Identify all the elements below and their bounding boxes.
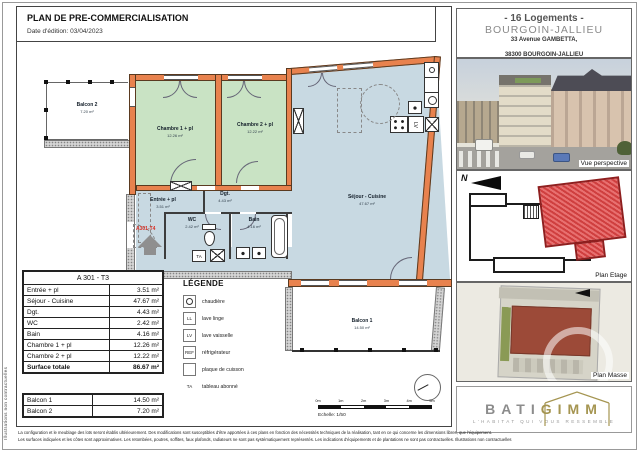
lv-label: LV	[412, 122, 418, 128]
partition-wc-bain	[229, 214, 231, 259]
table-row: Balcon 114.50 m²	[24, 395, 163, 406]
label-bain: Bain 4.16 m²	[234, 217, 274, 229]
north-letter: N	[461, 173, 468, 183]
disclaimer-line2: Les surfaces indiquées et les côtes sont…	[18, 437, 512, 442]
photo-building-mid	[499, 83, 551, 147]
row-label: Entrée + pl	[24, 285, 110, 296]
perspective-photo: Vue perspective	[456, 58, 632, 170]
compass-needle	[417, 384, 428, 391]
balcony-post	[66, 80, 70, 84]
photo-car-blue	[553, 153, 570, 162]
scale-tick: 2m	[361, 399, 366, 403]
legend-label: tableau abonné	[202, 384, 238, 390]
ta-box-icon: TA	[192, 250, 206, 262]
washer-icon	[210, 249, 225, 262]
legend-item: plaque de cuisson	[183, 363, 293, 377]
ta-icon: TA	[183, 380, 196, 393]
boiler-circle-icon	[183, 295, 196, 308]
side-note: Illustrations non contractuelles	[3, 295, 8, 440]
radiator-icon	[293, 108, 304, 134]
balcony-post	[334, 348, 338, 352]
room-area: 47.67 m²	[327, 201, 407, 206]
table-row: WC2.42 m²	[24, 318, 163, 329]
logo-house-icon	[543, 389, 613, 429]
balcony-post	[88, 80, 92, 84]
door-chambre2	[241, 186, 259, 190]
bathtub-inner	[274, 218, 285, 255]
legend-item: TA tableau abonné	[183, 380, 293, 394]
label-dgt: Dgt. 4.43 m²	[205, 191, 245, 203]
room-area: 14.50 m²	[327, 325, 397, 330]
cooktop-icon	[183, 363, 196, 376]
highlighted-unit	[538, 176, 627, 248]
north-arrow-icon	[471, 176, 501, 190]
partition-entree-wc	[164, 212, 166, 259]
room-area: 12.26 m²	[140, 133, 210, 138]
radiator-icon	[170, 181, 192, 191]
table-dashed-icon	[360, 84, 400, 124]
fridge-divider	[425, 77, 438, 78]
label-wc: WC 2.42 m²	[172, 217, 212, 229]
table-row: Bain4.16 m²	[24, 329, 163, 340]
north-arrow-icon	[575, 289, 590, 297]
label-chambre2: Chambre 2 + pl 12.22 m²	[220, 122, 290, 134]
legend: LÉGENDE chaudière LL lave linge LV lave …	[183, 279, 293, 397]
row-label: Chambre 1 + pl	[24, 340, 110, 351]
project-city: BOURGOIN-JALLIEU	[457, 24, 631, 36]
logo-box: BATIGIMM L'HABITAT QUI VOUS RESSEMBLE	[456, 386, 632, 433]
row-value: 12.22 m²	[109, 351, 162, 362]
row-label: Surface totale	[24, 362, 110, 373]
row-value: 2.42 m²	[109, 318, 162, 329]
boiler-circle-icon	[429, 67, 435, 73]
room-area: 4.43 m²	[205, 198, 245, 203]
row-value: 7.20 m²	[93, 406, 163, 417]
label-chambre1: Chambre 1 + pl 12.26 m²	[140, 126, 210, 138]
photo-van	[475, 139, 493, 151]
legend-item: chaudière	[183, 295, 293, 309]
row-label: WC	[24, 318, 110, 329]
mass-plan-label: Plan Masse	[591, 372, 629, 379]
balcony-post	[402, 348, 406, 352]
row-value: 47.67 m²	[109, 296, 162, 307]
row-value: 4.43 m²	[109, 307, 162, 318]
door-chambre1	[197, 186, 215, 190]
title-block: PLAN DE PRE-COMMERCIALISATION Date d'édi…	[16, 6, 436, 42]
radiator-icon	[425, 117, 439, 132]
perspective-label: Vue perspective	[579, 160, 629, 167]
washing-machine-icon: LL	[183, 312, 196, 325]
floor-key-plan: N Plan Etage	[456, 170, 632, 282]
row-value: 3.51 m²	[109, 285, 162, 296]
unit-title: A 301 - T3	[24, 272, 163, 285]
photo-green-terrace	[515, 78, 541, 83]
disclaimer-line1: La configuration et le meublage des lots…	[18, 430, 492, 435]
fridge-stack-icon	[424, 62, 439, 108]
project-address1: 33 Avenue GAMBETTA,	[457, 37, 631, 43]
photo-car-white	[519, 151, 535, 159]
label-balcon1: Balcon 1 14.50 m²	[327, 318, 397, 330]
plan-sheet: Illustrations non contractuelles PLAN DE…	[0, 0, 640, 453]
balcony-post	[434, 348, 438, 352]
balcony-door3	[399, 280, 427, 286]
dishwasher-icon: LV	[408, 116, 424, 133]
table-row: Chambre 1 + pl12.26 m²	[24, 340, 163, 351]
edition-date: Date d'édition: 03/04/2023	[27, 28, 103, 35]
balcony-post	[44, 136, 48, 140]
balcony-door2	[339, 280, 367, 286]
room-area: 3.51 m²	[138, 204, 188, 209]
dishwasher-icon: LV	[183, 329, 196, 342]
legend-item: LL lave linge	[183, 312, 293, 326]
row-label: Dgt.	[24, 307, 110, 318]
legend-item: REF réfrigérateur	[183, 346, 293, 360]
compass-icon	[414, 374, 441, 401]
balcony-post	[368, 348, 372, 352]
label-sejour: Séjour - Cuisine 47.67 m²	[327, 194, 407, 206]
legend-label: lave linge	[202, 316, 224, 322]
row-label: Balcon 2	[24, 406, 93, 417]
window-chambre2	[228, 75, 262, 80]
scale-tick: 5m	[429, 399, 434, 403]
table-header-row: A 301 - T3	[24, 272, 163, 285]
scale-tick: 3m	[384, 399, 389, 403]
sink-icon	[236, 247, 250, 259]
project-units: - 16 Logements -	[457, 13, 631, 24]
table-row: Balcon 27.20 m²	[24, 406, 163, 417]
balcony-post	[44, 108, 48, 112]
window-balcon2-door	[130, 87, 135, 107]
scale-label: Echelle: 1/50	[318, 413, 346, 418]
table-row: Entrée + pl3.51 m²	[24, 285, 163, 296]
stair-core	[523, 205, 539, 219]
legend-label: plaque de cuisson	[202, 367, 244, 373]
balcony-door1	[301, 280, 329, 286]
balcony-post	[300, 348, 304, 352]
label-entree: Entrée + pl 3.51 m²	[138, 197, 188, 209]
sheet-title: PLAN DE PRE-COMMERCIALISATION	[27, 13, 188, 23]
window-sejour-top2	[343, 62, 373, 69]
legend-label: réfrigérateur	[202, 350, 230, 356]
table-row: Séjour - Cuisine47.67 m²	[24, 296, 163, 307]
row-value: 4.16 m²	[109, 329, 162, 340]
scale-tick: 0m	[315, 399, 320, 403]
photo-crosswalk	[459, 151, 499, 167]
legend-title: LÉGENDE	[183, 279, 224, 288]
room-area: 7.20 m²	[52, 109, 122, 114]
entry-arrow-icon	[138, 235, 162, 247]
sink-icon	[252, 247, 266, 259]
photo-roof-right	[551, 69, 632, 91]
wall-top-left	[130, 74, 292, 81]
room-area: 4.16 m²	[234, 224, 274, 229]
legend-label: chaudière	[202, 299, 225, 305]
fridge-divider	[425, 92, 438, 93]
mass-plan: Plan Masse	[456, 282, 632, 382]
legend-label: lave vaisselle	[202, 333, 233, 339]
entry-arrow-stem	[144, 247, 156, 255]
wall-bottom-sejour	[288, 279, 452, 287]
photo-bush	[617, 141, 632, 155]
project-info-box: - 16 Logements - BOURGOIN-JALLIEU 33 Ave…	[456, 8, 632, 58]
kitchen-sink-icon	[408, 101, 422, 114]
hatch-wall-balcon2	[44, 140, 136, 148]
photo-building-right	[551, 89, 632, 147]
row-label: Bain	[24, 329, 110, 340]
highlighted-unit-tail	[574, 239, 606, 261]
legend-item: LV lave vaisselle	[183, 329, 293, 343]
scale-tick: 1m	[338, 399, 343, 403]
table-total-row: Surface totale86.67 m²	[24, 362, 163, 373]
counter-dashed-icon	[337, 88, 362, 133]
window-sejour-top	[309, 65, 337, 72]
room-area: 12.22 m²	[220, 129, 290, 134]
balcony-table: Balcon 114.50 m² Balcon 27.20 m²	[22, 393, 164, 418]
fridge-icon: REF	[183, 346, 196, 359]
building-wing	[493, 257, 565, 273]
partition-wc-top-a	[164, 212, 205, 214]
row-value: 14.50 m²	[93, 395, 163, 406]
building-wing2	[469, 193, 507, 207]
row-label: Séjour - Cuisine	[24, 296, 110, 307]
row-value: 12.26 m²	[109, 340, 162, 351]
scale-segments	[318, 405, 432, 409]
label-balcon2: Balcon 2 7.20 m²	[52, 102, 122, 114]
ta-label: TA	[196, 254, 201, 259]
wall-left	[129, 74, 136, 195]
scale-tick: 4m	[407, 399, 412, 403]
row-label: Chambre 2 + pl	[24, 351, 110, 362]
logo-part1: BATI	[485, 401, 541, 417]
floor-plan-label: Plan Etage	[593, 272, 629, 279]
balcony-post	[110, 80, 114, 84]
balcon1-rail	[292, 350, 440, 352]
room-area: 2.42 m²	[172, 224, 212, 229]
unit-ref-label: A301-T4	[136, 226, 155, 232]
window-chambre1	[164, 75, 198, 80]
table-row: Dgt.4.43 m²	[24, 307, 163, 318]
fridge-circle-icon	[428, 96, 437, 105]
row-value: 86.67 m²	[109, 362, 162, 373]
row-label: Balcon 1	[24, 395, 93, 406]
balcony-post	[44, 80, 48, 84]
table-row: Chambre 2 + pl12.22 m²	[24, 351, 163, 362]
unit-table: A 301 - T3 Entrée + pl3.51 m² Séjour - C…	[22, 270, 164, 374]
